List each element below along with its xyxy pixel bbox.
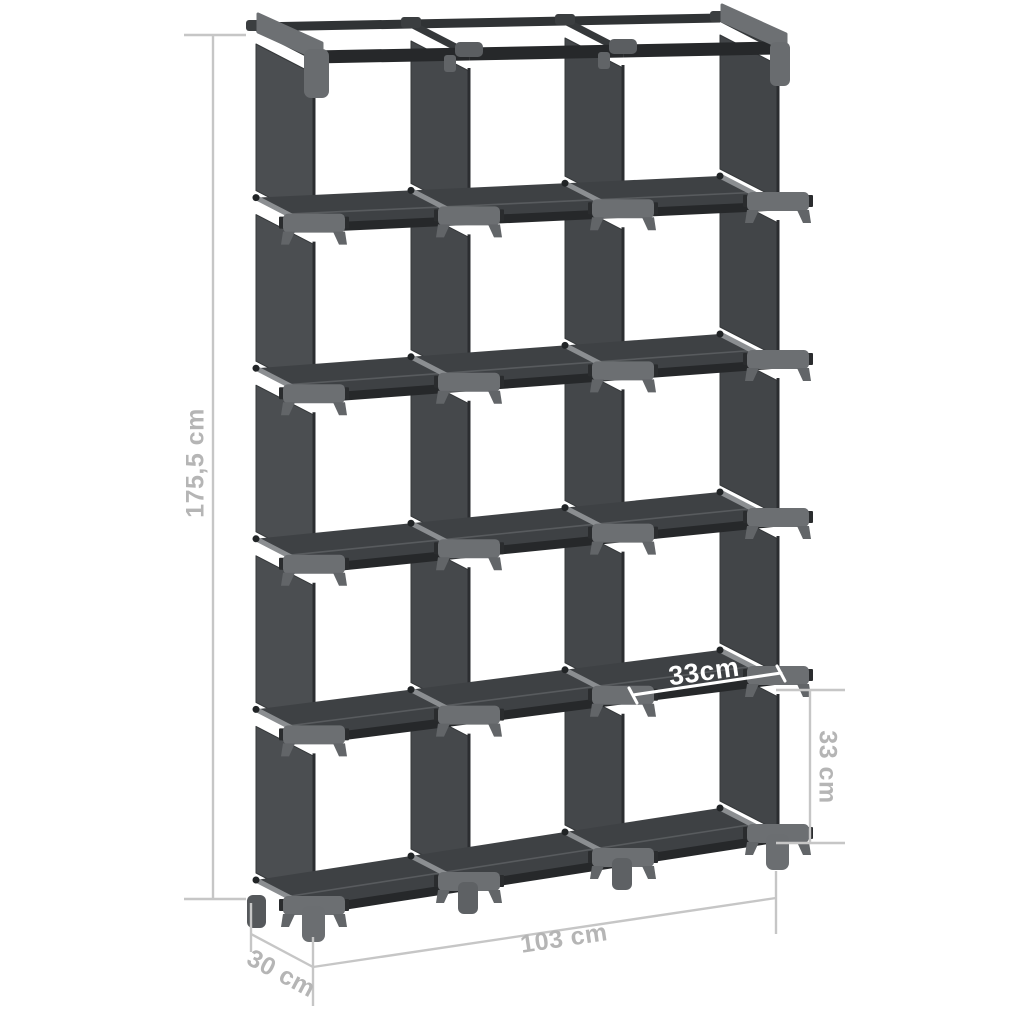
cube-height-dimension-label: 33 cm <box>815 730 840 803</box>
shelf-boards <box>256 176 778 910</box>
shelf-unit-graphic <box>0 0 1024 1024</box>
fabric-panels <box>256 35 778 906</box>
height-dimension-label: 175,5 cm <box>184 408 209 518</box>
product-dimension-diagram: 175,5 cm 103 cm 30 cm 33 cm 33cm <box>0 0 1024 1024</box>
